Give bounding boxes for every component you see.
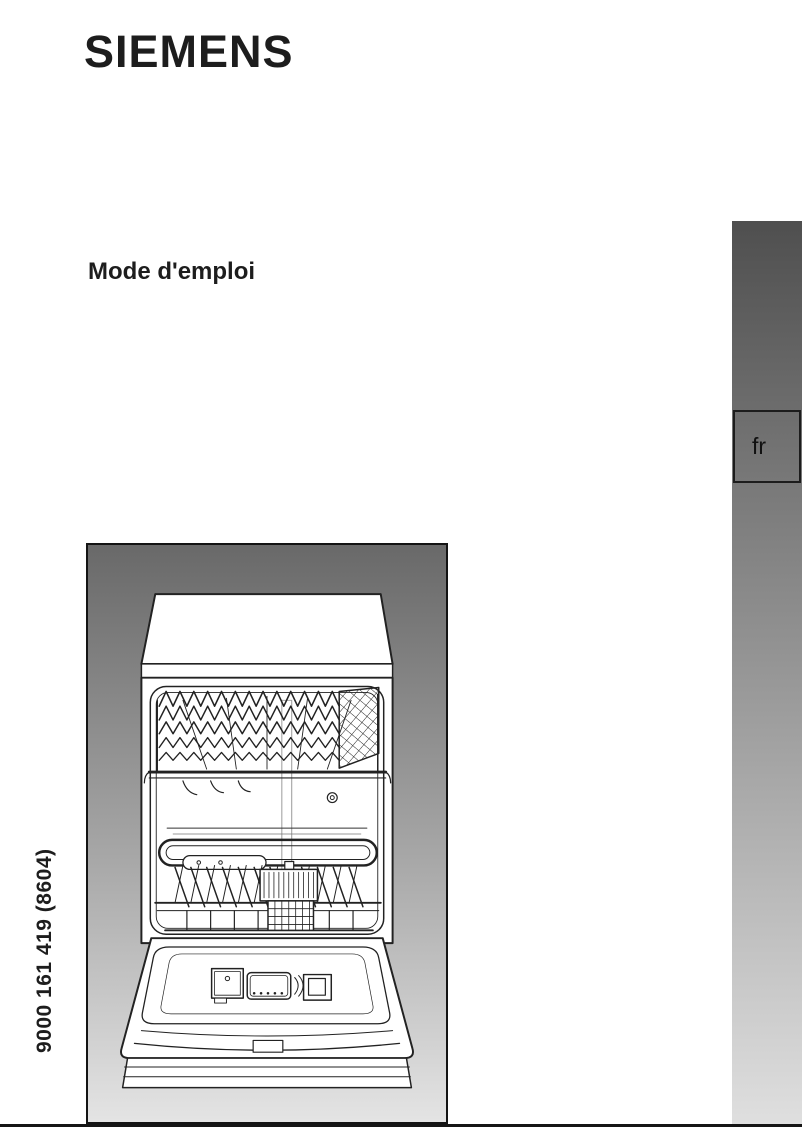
order-number-vertical: 9000 161 419 (8604) [33,849,57,1054]
page-bottom-rule [0,1124,802,1127]
manual-cover-page: SIEMENS Mode d'emploi fr [0,0,802,1136]
language-tab-label: fr [752,433,766,460]
language-index-sidebar [732,221,802,1124]
product-figure-frame [86,543,448,1124]
document-title: Mode d'emploi [88,258,255,286]
dishwasher-illustration-icon [88,545,446,1122]
brand-logo: SIEMENS [84,26,294,78]
language-tab-fr: fr [733,410,801,483]
